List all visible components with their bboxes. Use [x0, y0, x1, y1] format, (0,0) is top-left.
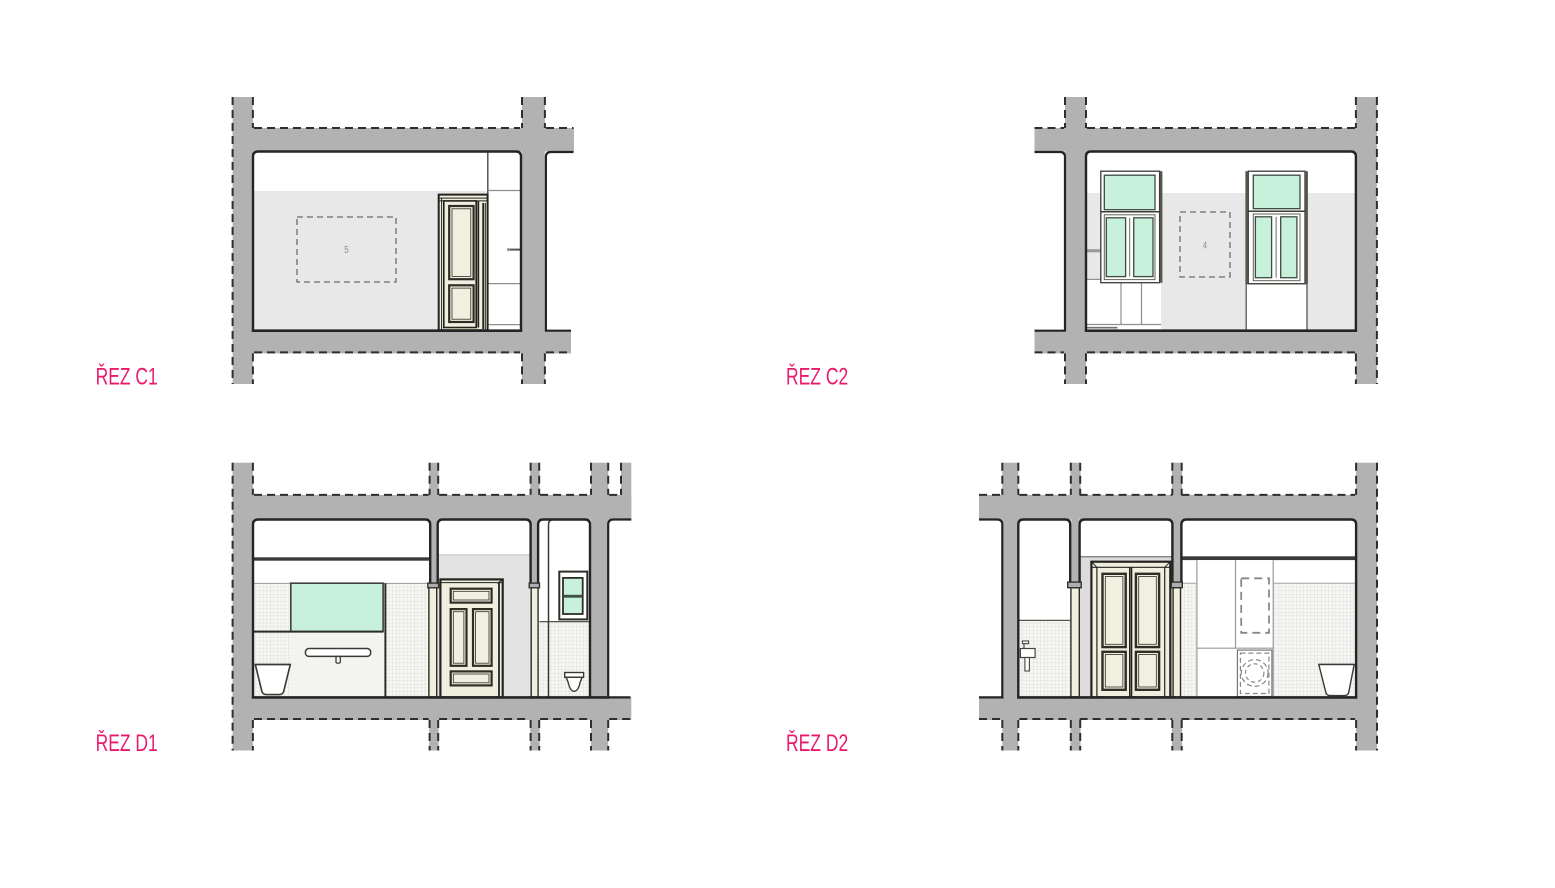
svg-text:ŘEZ C2: ŘEZ C2 — [786, 361, 848, 390]
svg-text:ŘEZ D1: ŘEZ D1 — [96, 728, 158, 757]
svg-text:4: 4 — [1203, 239, 1207, 250]
svg-text:5: 5 — [344, 244, 348, 255]
svg-text:ŘEZ C1: ŘEZ C1 — [96, 361, 158, 390]
svg-text:ŘEZ D2: ŘEZ D2 — [786, 728, 848, 757]
